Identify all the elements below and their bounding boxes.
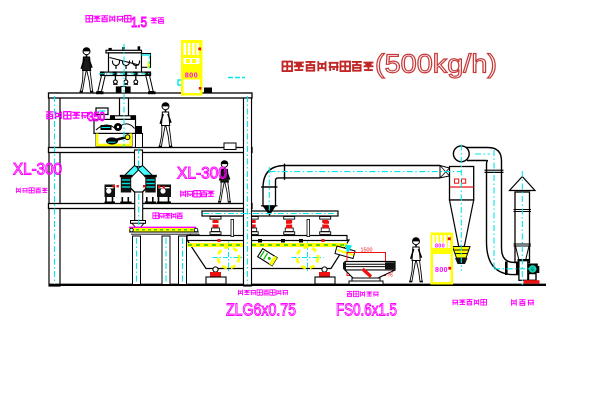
svg-text:1500: 1500 (361, 248, 373, 254)
svg-text:800: 800 (435, 243, 445, 249)
svg-text:35: 35 (389, 271, 395, 277)
svg-text:800: 800 (435, 267, 448, 274)
svg-text:(500kg/h): (500kg/h) (375, 49, 497, 79)
svg-text:XL-300: XL-300 (177, 165, 227, 183)
svg-text:350: 350 (88, 109, 105, 124)
svg-text:ZLG6x0.75: ZLG6x0.75 (226, 300, 296, 320)
svg-text:800: 800 (185, 73, 198, 80)
svg-text:FS0.6x1.5: FS0.6x1.5 (336, 300, 397, 320)
svg-text:XL-300: XL-300 (13, 161, 62, 179)
svg-text:1.5: 1.5 (131, 14, 147, 31)
